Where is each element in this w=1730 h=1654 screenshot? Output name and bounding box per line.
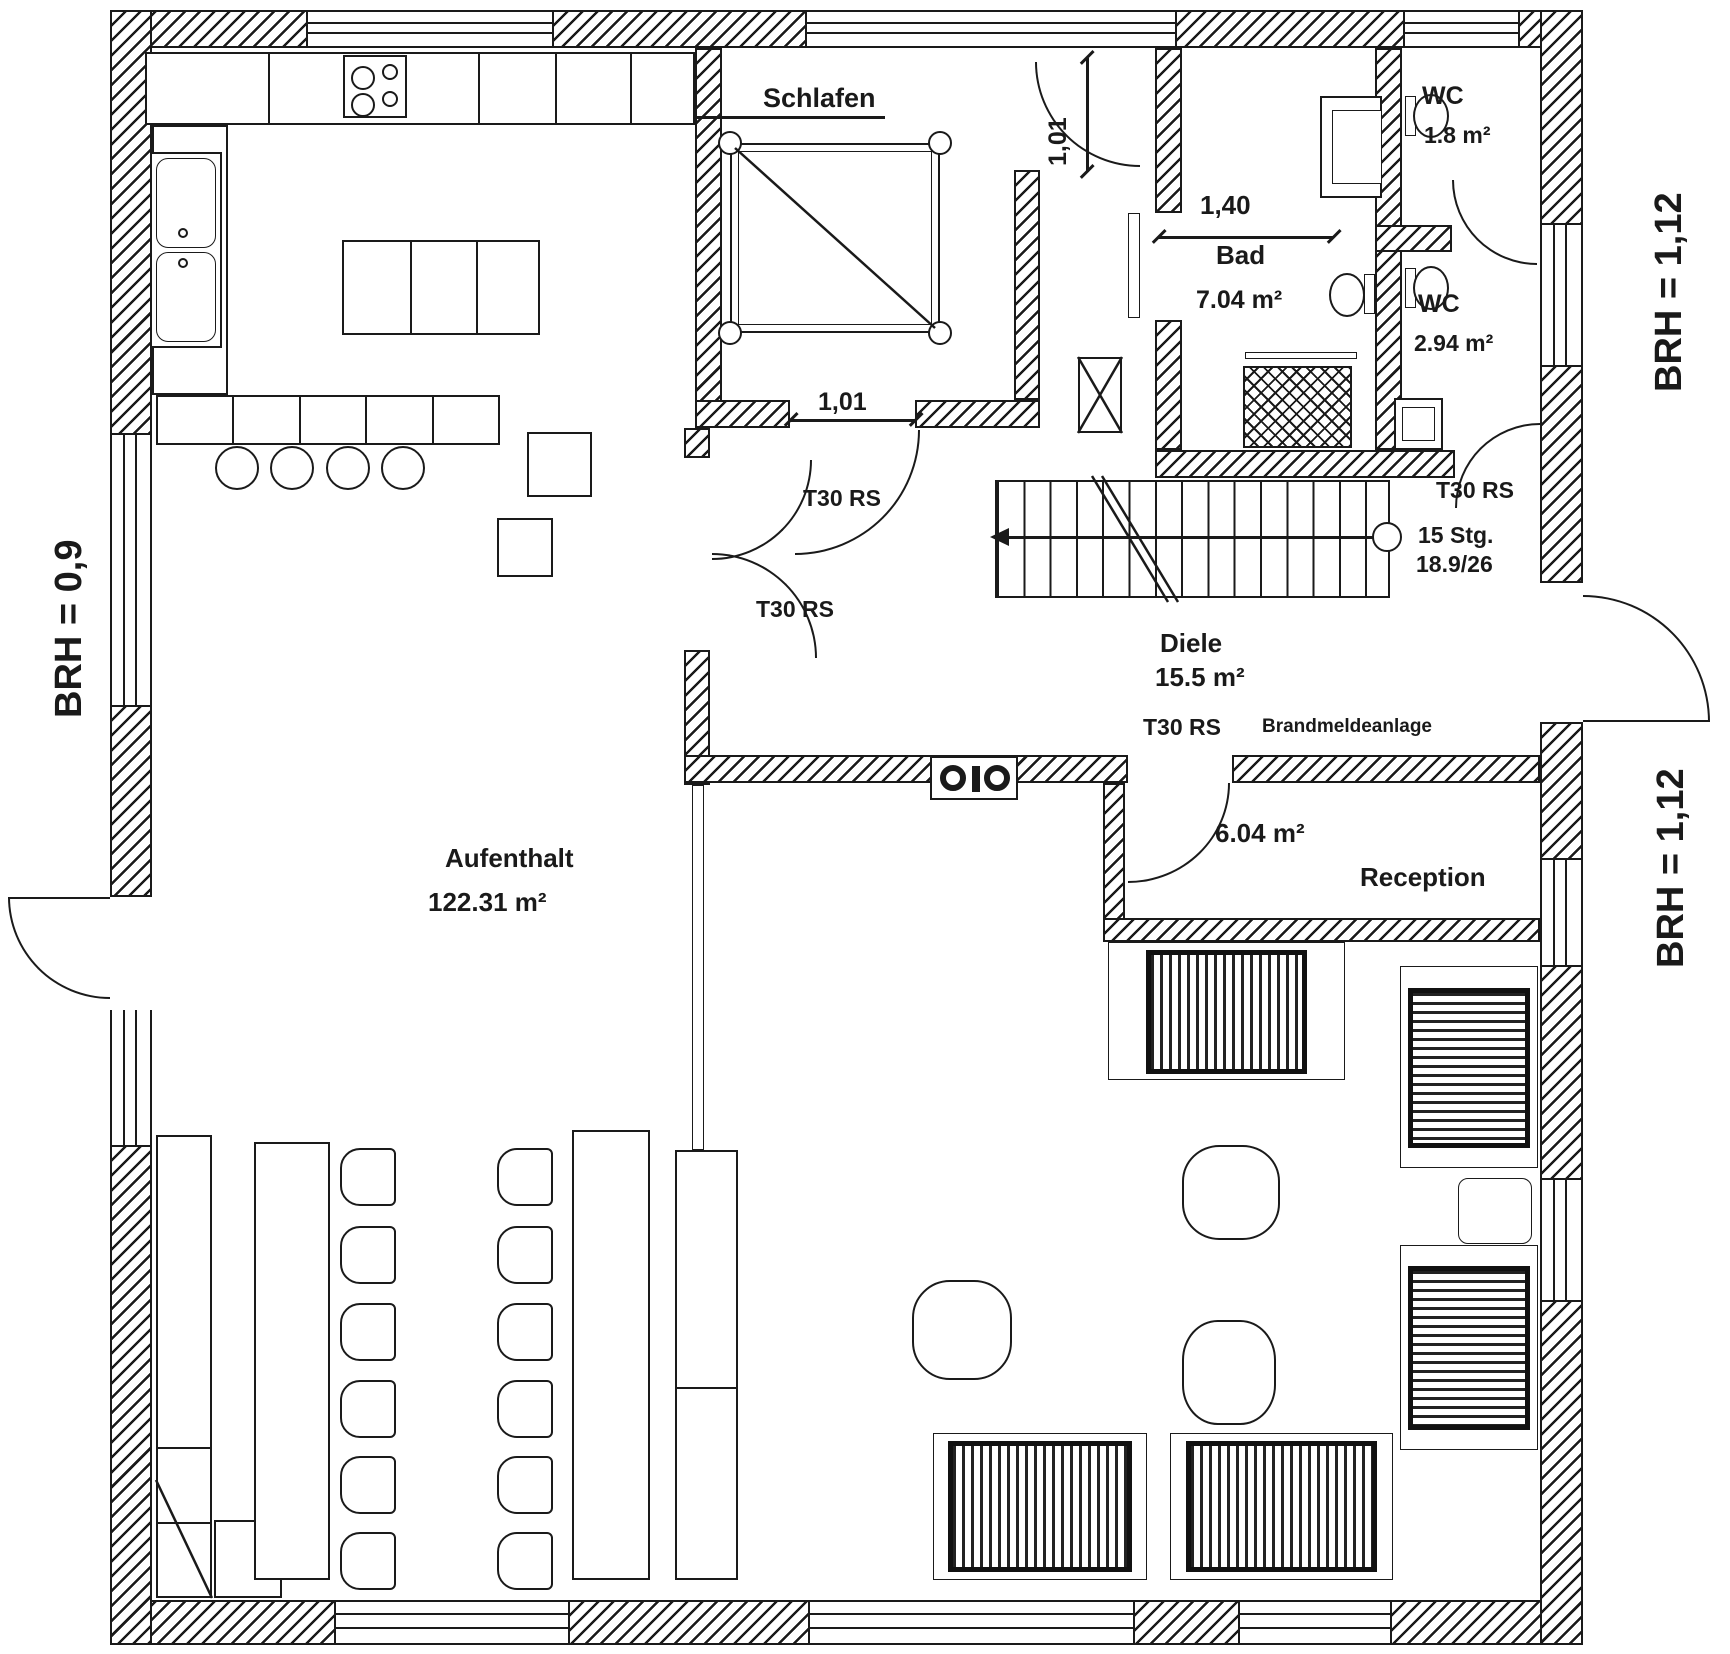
- bed-post: [928, 131, 952, 155]
- chair: [497, 1148, 553, 1206]
- stool: [381, 446, 425, 490]
- kitchen-cabinet-row: [156, 395, 500, 445]
- wall-bottom-segment: [1133, 1600, 1240, 1645]
- window: [1540, 225, 1583, 365]
- toilet-tank: [1364, 274, 1375, 314]
- window: [1540, 1180, 1583, 1300]
- chair: [340, 1226, 396, 1284]
- door-closer-device: [930, 756, 1018, 800]
- kitchen-counter-top: [145, 52, 695, 125]
- wall-right-segment: [1540, 1300, 1583, 1645]
- dim-label-schlafen-top-door: 1,01: [1044, 117, 1073, 166]
- stairs-ratio-label: 18.9/26: [1416, 551, 1493, 578]
- wall-bad-left: [1155, 320, 1182, 450]
- wall-right-segment: [1540, 965, 1583, 1180]
- room-label-wc-small: WC: [1422, 82, 1464, 111]
- chair: [340, 1456, 396, 1514]
- fire-door-label: T30 RS: [756, 596, 834, 623]
- stairs-walk-line: [1008, 536, 1376, 539]
- room-label-bad: Bad: [1216, 240, 1265, 271]
- wall-top-segment: [1175, 10, 1405, 48]
- wall-schlafen-bottom: [915, 400, 1040, 428]
- wall-schlafen-bottom: [695, 400, 790, 428]
- chair: [497, 1226, 553, 1284]
- coffee-table: [912, 1280, 1012, 1380]
- chair: [340, 1532, 396, 1590]
- shower-tray: [1243, 366, 1352, 448]
- window: [807, 10, 1175, 48]
- wall-reception-bottom: [1103, 918, 1540, 942]
- wall-reception-left: [1103, 783, 1125, 940]
- sofa-cushions: [1186, 1441, 1377, 1572]
- sofa-cushions: [1408, 1266, 1530, 1430]
- window: [1405, 10, 1518, 48]
- dining-table: [254, 1142, 330, 1580]
- room-label-wc-large: WC: [1418, 290, 1460, 319]
- sink-faucet: [178, 258, 188, 268]
- parapet-label-right-top: BRH = 1,12: [1648, 192, 1691, 392]
- stove-burner: [351, 66, 375, 90]
- wall-diele-bottom: [684, 755, 1128, 783]
- device-knob: [940, 765, 966, 791]
- dim-line-schlafen-top-door: [1086, 58, 1089, 172]
- fire-door-label: T30 RS: [1436, 477, 1514, 504]
- door-arc-exterior-right: [1583, 595, 1710, 722]
- wall-left-segment: [110, 705, 152, 897]
- dim-label-bad-width: 1,40: [1200, 190, 1251, 221]
- area-label-aufenthalt: 122.31 m²: [428, 887, 547, 918]
- curtain-rail-line: [697, 116, 885, 119]
- floor-plan: 1,01 1,40 Bad 7.04 m² WC 1.8 m² WC 2.94 …: [0, 0, 1730, 1654]
- wall-right-segment: [1540, 365, 1583, 583]
- window: [110, 435, 152, 705]
- device-bar: [972, 766, 980, 792]
- parapet-label-right-mid: BRH = 1,12: [1650, 768, 1693, 968]
- stove-burner: [351, 93, 375, 117]
- room-label-aufenthalt: Aufenthalt: [445, 843, 574, 874]
- railing-stub: [692, 785, 704, 1150]
- chair: [340, 1380, 396, 1438]
- stairs: [995, 480, 1390, 598]
- wall-bottom-segment: [568, 1600, 810, 1645]
- sofa-cushions: [948, 1441, 1132, 1572]
- side-table-square: [527, 432, 592, 497]
- wall-diele-left: [684, 428, 710, 458]
- chair: [497, 1303, 553, 1361]
- sofa-cushions: [1408, 988, 1530, 1148]
- stairs-walk-line-end: [1372, 522, 1402, 552]
- wall-wc-divider: [1375, 225, 1452, 252]
- area-label-reception: 6.04 m²: [1215, 818, 1305, 849]
- area-label-bad: 7.04 m²: [1196, 286, 1282, 315]
- wc-washbasin-inner: [1402, 407, 1435, 441]
- sink-faucet: [178, 228, 188, 238]
- wall-diele-bottom: [1232, 755, 1540, 783]
- shower-shelf: [1245, 352, 1357, 359]
- stairs-direction-arrow: [990, 528, 1009, 546]
- wall-sanitary-bottom: [1155, 450, 1455, 478]
- stool: [215, 446, 259, 490]
- sofa-cushions: [1146, 950, 1307, 1074]
- window: [336, 1600, 568, 1645]
- bed-post: [718, 131, 742, 155]
- parapet-label-left: BRH = 0,9: [48, 540, 91, 718]
- device-knob: [984, 765, 1010, 791]
- room-label-reception: Reception: [1360, 862, 1486, 893]
- shaft-box: [1078, 357, 1122, 433]
- area-label-wc-large: 2.94 m²: [1414, 330, 1493, 357]
- bad-washbasin-inner: [1332, 110, 1382, 184]
- dim-line-schlafen-bottom-door: [790, 419, 915, 422]
- coffee-table: [1182, 1320, 1276, 1425]
- dim-line-bad-width: [1158, 236, 1333, 239]
- kitchen-island: [342, 240, 540, 335]
- room-label-diele: Diele: [1160, 628, 1222, 659]
- bench: [675, 1150, 738, 1580]
- wall-right-segment: [1540, 722, 1583, 860]
- window: [810, 1600, 1133, 1645]
- window: [308, 10, 552, 48]
- window: [110, 1010, 152, 1145]
- side-table: [1458, 1178, 1532, 1244]
- stove-burner: [382, 64, 398, 80]
- area-label-diele: 15.5 m²: [1155, 662, 1245, 693]
- bed-post: [718, 321, 742, 345]
- stool: [326, 446, 370, 490]
- chair: [340, 1303, 396, 1361]
- window: [1540, 860, 1583, 965]
- wall-bad-left: [1155, 48, 1182, 213]
- area-label-wc-small: 1.8 m²: [1424, 122, 1490, 149]
- window: [1240, 1600, 1390, 1645]
- chair: [497, 1380, 553, 1438]
- door-arc-exterior-left: [8, 897, 110, 999]
- bed-post: [928, 321, 952, 345]
- stairs-count-label: 15 Stg.: [1418, 522, 1493, 549]
- wall-bench: [156, 1135, 212, 1598]
- stool: [270, 446, 314, 490]
- fire-door-label: T30 RS: [1143, 714, 1221, 741]
- chair: [497, 1456, 553, 1514]
- wall-top-segment: [552, 10, 807, 48]
- dim-label-schlafen-bottom-door: 1,01: [818, 388, 867, 417]
- chair: [497, 1532, 553, 1590]
- wall-schlafen-left: [695, 48, 722, 428]
- fire-door-label: T30 RS: [803, 485, 881, 512]
- bed-mattress: [738, 151, 932, 325]
- chair: [340, 1148, 396, 1206]
- fire-alarm-label: Brandmeldeanlage: [1262, 716, 1432, 738]
- wall-left-segment: [110, 1145, 152, 1645]
- wall-schlafen-right: [1014, 170, 1040, 400]
- side-table-square: [497, 518, 553, 577]
- door-arc-wc-small: [1452, 180, 1537, 265]
- stove-burner: [382, 91, 398, 107]
- dining-table: [572, 1130, 650, 1580]
- door-leaf-bad: [1128, 213, 1140, 318]
- room-label-schlafen: Schlafen: [763, 83, 876, 114]
- coffee-table: [1182, 1145, 1280, 1240]
- toilet-bowl: [1329, 273, 1365, 317]
- wall-right-segment: [1540, 10, 1583, 225]
